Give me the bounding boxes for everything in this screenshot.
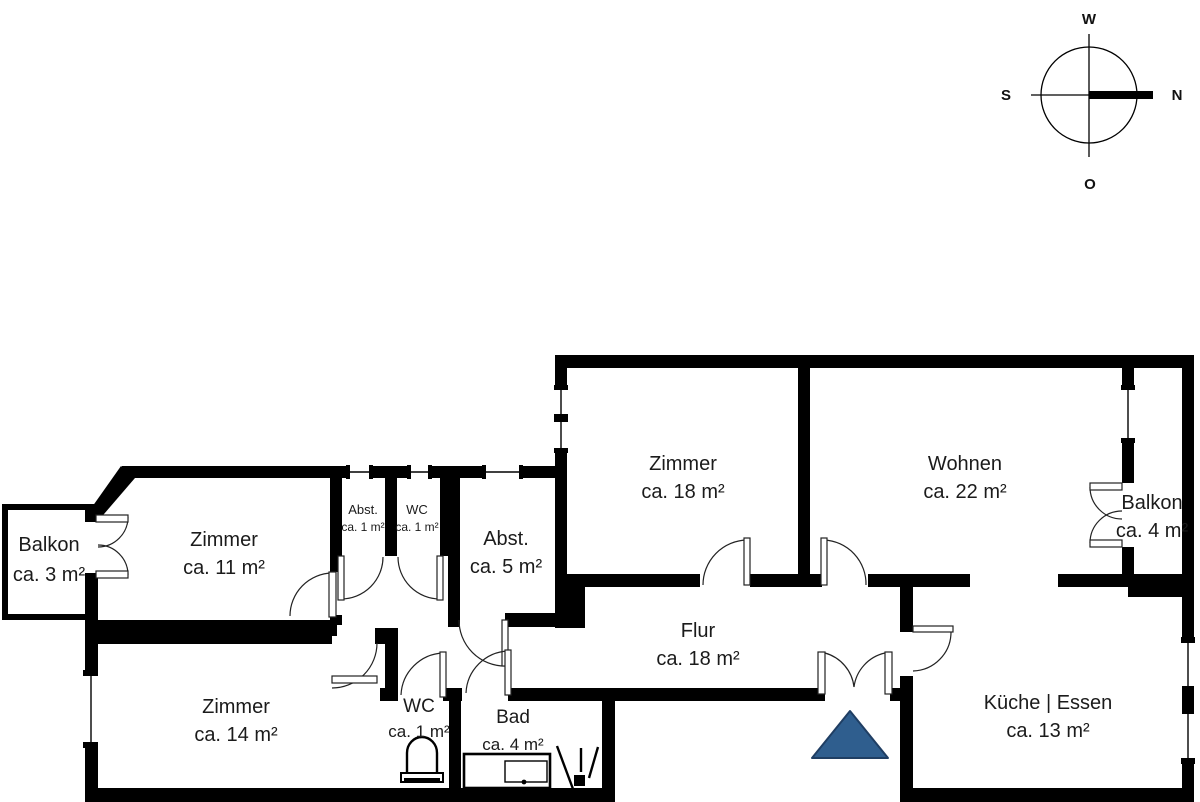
room-label-zimmer-11: Zimmer ca. 11 m² [183, 529, 265, 579]
window-kueche-right-2 [1181, 714, 1195, 764]
floor-plan-drawing: W N S O Balkon ca. 3 m² Zimmer ca. 11 m²… [0, 0, 1200, 802]
door-wc-lower [401, 652, 446, 697]
room-area: ca. 14 m² [194, 724, 278, 746]
room-label-balkon-3: Balkon ca. 3 m² [13, 534, 86, 586]
door-zimmer14 [332, 643, 377, 688]
room-name: Balkon [1121, 492, 1182, 514]
window-zimmer18-left [554, 385, 568, 453]
window-top-wall-3 [482, 465, 523, 479]
balcony-left-walls [2, 504, 95, 620]
room-name: WC [403, 696, 435, 717]
compass-east-label: O [1084, 176, 1096, 193]
room-name: Zimmer [649, 453, 717, 475]
room-area: ca. 1 m² [388, 722, 450, 741]
window-zimmer14-left [83, 670, 98, 748]
room-label-wohnen: Wohnen ca. 22 m² [923, 453, 1007, 503]
window-kueche-right-1 [1181, 637, 1195, 686]
room-name: Balkon [18, 534, 79, 556]
doors [96, 483, 1122, 697]
room-area: ca. 4 m² [1116, 520, 1189, 542]
room-area: ca. 1 m² [341, 520, 384, 534]
room-area: ca. 11 m² [183, 557, 265, 579]
room-label-wc-lower: WC ca. 1 m² [388, 696, 450, 741]
entrance-marker [812, 711, 888, 758]
room-area: ca. 18 m² [641, 481, 725, 503]
room-area: ca. 5 m² [470, 556, 543, 578]
room-area: ca. 1 m² [395, 520, 438, 534]
room-name: Wohnen [928, 453, 1002, 475]
compass-rose: W N S O [1001, 11, 1182, 193]
door-kueche [913, 626, 953, 671]
room-area: ca. 22 m² [923, 481, 1007, 503]
compass-needle [1089, 91, 1153, 99]
room-name: Bad [496, 707, 530, 728]
door-entrance [818, 652, 892, 694]
room-name: WC [406, 502, 428, 517]
door-abst1 [338, 556, 383, 600]
room-label-wc-upper: WC ca. 1 m² [395, 502, 438, 534]
window-top-wall-1 [346, 465, 373, 479]
room-label-bad: Bad ca. 4 m² [482, 707, 544, 754]
room-labels: Balkon ca. 3 m² Zimmer ca. 11 m² Abst. c… [13, 453, 1189, 754]
door-wohnen [821, 538, 866, 585]
compass-south-label: S [1001, 87, 1011, 104]
floor-plan-page: W N S O Balkon ca. 3 m² Zimmer ca. 11 m²… [0, 0, 1200, 802]
room-label-zimmer-14: Zimmer ca. 14 m² [194, 696, 278, 746]
bathtub-icon [464, 754, 550, 788]
compass-north-label: N [1172, 87, 1183, 104]
room-name: Küche | Essen [984, 692, 1113, 714]
toilet-icon [401, 737, 443, 782]
room-label-abst-5: Abst. ca. 5 m² [470, 528, 543, 578]
door-zimmer11 [290, 572, 336, 617]
window-balkon-divider [1121, 385, 1135, 443]
room-name: Zimmer [190, 529, 258, 551]
room-area: ca. 4 m² [482, 735, 544, 754]
compass-west-label: W [1082, 11, 1097, 28]
room-label-kueche-essen: Küche | Essen ca. 13 m² [984, 692, 1113, 742]
room-area: ca. 13 m² [1006, 720, 1090, 742]
room-label-zimmer-18: Zimmer ca. 18 m² [641, 453, 725, 503]
room-name: Abst. [483, 528, 529, 550]
door-zimmer18 [703, 538, 750, 585]
room-label-abst-1: Abst. ca. 1 m² [341, 502, 384, 534]
room-name: Zimmer [202, 696, 270, 718]
shower-icon [557, 746, 598, 789]
room-name: Abst. [348, 502, 378, 517]
room-label-balkon-4: Balkon ca. 4 m² [1116, 492, 1189, 542]
room-area: ca. 18 m² [656, 648, 740, 670]
room-area: ca. 3 m² [13, 564, 86, 586]
room-label-flur: Flur ca. 18 m² [656, 620, 740, 670]
window-top-wall-2 [407, 465, 432, 479]
door-wc-upper [398, 556, 443, 600]
door-balkon-left [96, 515, 128, 578]
room-name: Flur [681, 620, 716, 642]
